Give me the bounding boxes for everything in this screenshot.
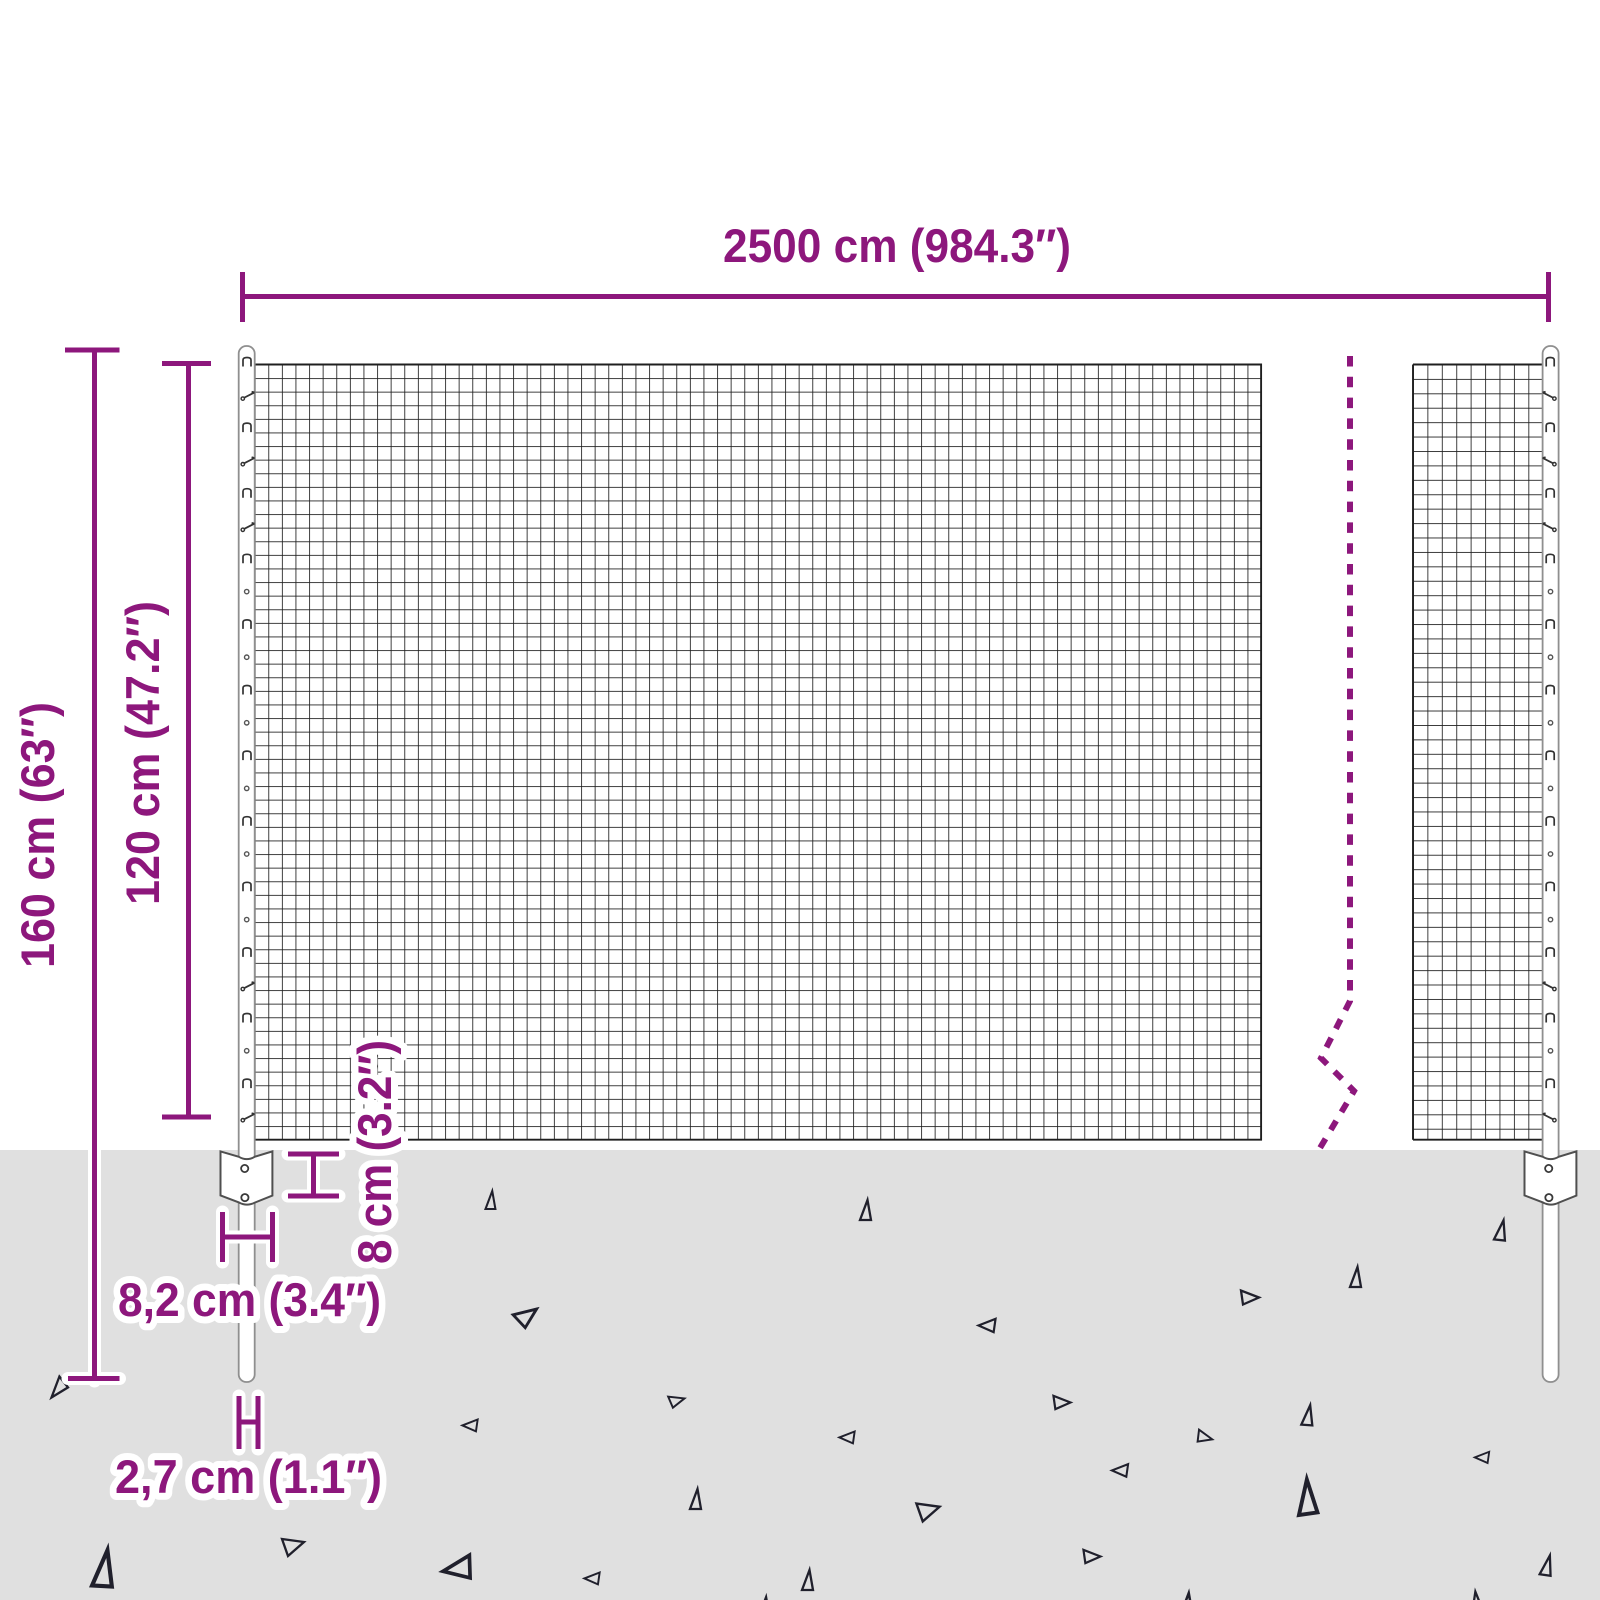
- svg-text:120 cm (47.2″): 120 cm (47.2″): [116, 601, 169, 905]
- svg-text:160 cm (63″): 160 cm (63″): [11, 702, 64, 968]
- svg-text:8,2 cm (3.4″): 8,2 cm (3.4″): [118, 1273, 381, 1326]
- svg-text:2500 cm (984.3″): 2500 cm (984.3″): [723, 219, 1071, 272]
- svg-text:2,7 cm (1.1″): 2,7 cm (1.1″): [115, 1450, 382, 1503]
- svg-text:8 cm (3.2″): 8 cm (3.2″): [348, 1040, 401, 1264]
